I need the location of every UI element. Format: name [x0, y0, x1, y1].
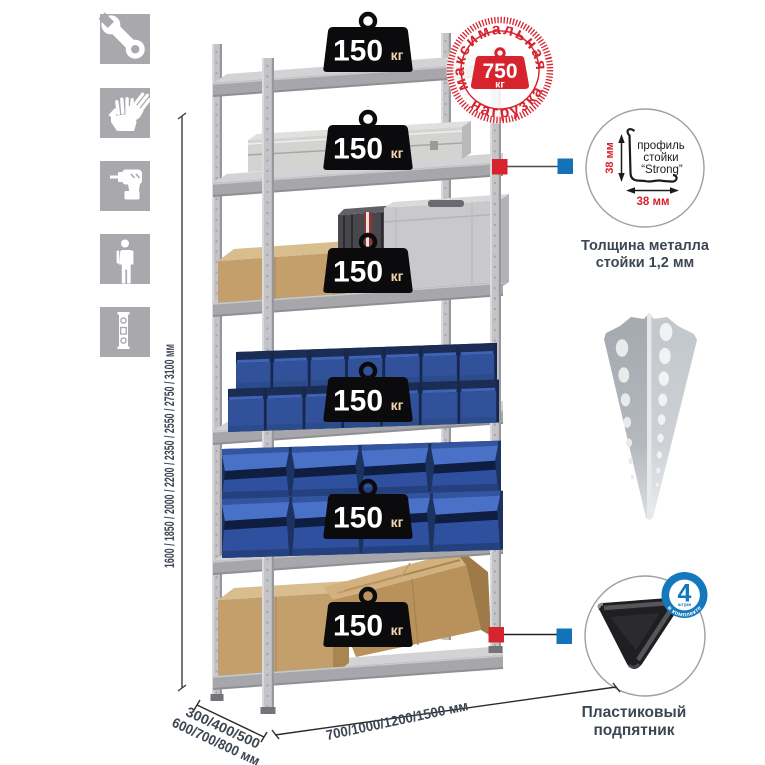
- svg-text:профиль: профиль: [637, 140, 685, 152]
- svg-text:150: 150: [333, 502, 383, 535]
- svg-text:1600 / 1850 / 2000 / 2200 / 23: 1600 / 1850 / 2000 / 2200 / 2350 / 2550 …: [162, 344, 177, 568]
- svg-text:“Strong”: “Strong”: [641, 164, 683, 176]
- svg-text:150: 150: [333, 256, 383, 289]
- svg-text:Толщина металла: Толщина металла: [581, 238, 710, 254]
- svg-text:кг: кг: [391, 145, 404, 161]
- svg-text:кг: кг: [391, 397, 404, 413]
- svg-text:кг: кг: [391, 622, 404, 638]
- svg-text:Пластиковый: Пластиковый: [582, 704, 687, 721]
- svg-text:150: 150: [333, 133, 383, 166]
- svg-text:подпятник: подпятник: [593, 722, 674, 739]
- svg-text:150: 150: [333, 35, 383, 68]
- svg-text:кг: кг: [495, 79, 505, 91]
- svg-text:стойки 1,2 мм: стойки 1,2 мм: [596, 255, 695, 271]
- svg-text:кг: кг: [391, 514, 404, 530]
- svg-text:700/1000/1200/1500 мм: 700/1000/1200/1500 мм: [324, 697, 469, 743]
- svg-text:38 мм: 38 мм: [604, 142, 616, 174]
- svg-text:кг: кг: [391, 47, 404, 63]
- svg-text:150: 150: [333, 610, 383, 643]
- svg-text:38 мм: 38 мм: [636, 196, 669, 208]
- svg-text:150: 150: [333, 385, 383, 418]
- svg-text:кг: кг: [391, 268, 404, 284]
- svg-text:штуки: штуки: [678, 602, 692, 607]
- svg-text:стойки: стойки: [643, 152, 678, 164]
